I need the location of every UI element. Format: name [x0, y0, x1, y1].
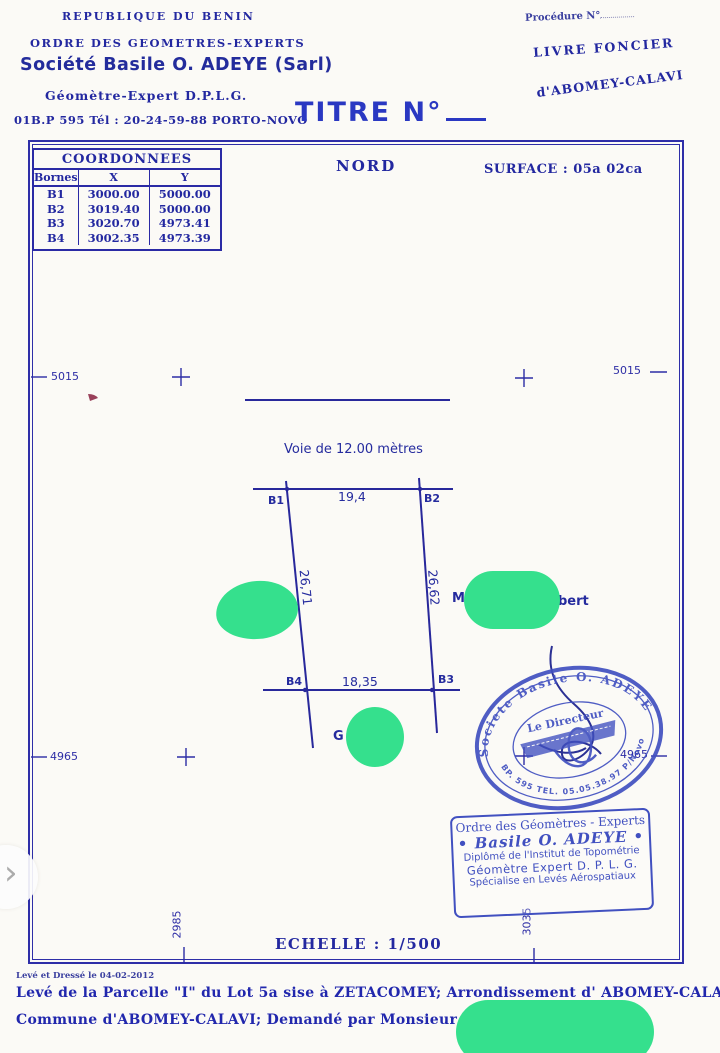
- cell-y: 4973.41: [149, 216, 220, 231]
- length-bottom-side: 18,35: [342, 674, 378, 689]
- road-width-label: Voie de 12.00 mètres: [284, 442, 423, 457]
- cell-x: 3020.70: [78, 216, 149, 231]
- order-heading: ORDRE DES GEOMETRES-EXPERTS: [30, 36, 305, 50]
- corner-label-b3: B3: [438, 673, 454, 686]
- republic-heading: REPUBLIQUE DU BENIN: [62, 10, 255, 23]
- surveyor-stamp: Ordre des Géomètres - Experts • Basile O…: [450, 808, 654, 919]
- corner-label-b1: B1: [268, 494, 284, 507]
- cell-x: 3002.35: [78, 231, 149, 246]
- grid-label-2985-bottom: 2985: [171, 911, 184, 939]
- coordinates-table: COORDONNEES Bornes X Y B1 3000.00 5000.0…: [32, 148, 222, 251]
- grid-label-4965-left: 4965: [50, 750, 78, 763]
- survey-date-note: Levé et Dressé le 04-02-2012: [16, 971, 154, 981]
- neighbor-name-prefix: M: [452, 591, 465, 606]
- scanned-land-title-document: REPUBLIQUE DU BENIN ORDRE DES GEOMETRES-…: [0, 0, 720, 1053]
- col-bornes: Bornes: [34, 170, 78, 186]
- cell-x: 3000.00: [78, 186, 149, 202]
- scale-label: ECHELLE : 1/500: [275, 935, 442, 953]
- table-row: B1 3000.00 5000.00: [34, 186, 220, 202]
- grid-label-5015-right: 5015: [613, 364, 641, 377]
- cell-borne: B4: [34, 231, 78, 246]
- document-title: TITRE N°: [295, 96, 486, 128]
- land-registry-label: LIVRE FONCIER: [533, 35, 675, 60]
- table-row: B3 3020.70 4973.41: [34, 216, 220, 231]
- neighbor-name-suffix: bert: [558, 594, 589, 609]
- company-name: Société Basile O. ADEYE (Sarl): [20, 55, 333, 75]
- cell-y: 4973.39: [149, 231, 220, 246]
- title-text: TITRE N°: [295, 97, 443, 128]
- table-header-row: Bornes X Y: [34, 170, 220, 186]
- north-label: NORD: [336, 157, 396, 175]
- grid-label-4965-right: 4965: [620, 748, 648, 761]
- corner-label-b2: B2: [424, 492, 440, 505]
- surveyor-title: Géomètre-Expert D.P.L.G.: [45, 88, 247, 103]
- cell-borne: B3: [34, 216, 78, 231]
- redaction-blob-footer: [456, 1000, 654, 1053]
- chevron-right-icon: ›: [4, 853, 18, 893]
- col-y: Y: [149, 170, 220, 186]
- corner-label-b4: B4: [286, 675, 302, 688]
- title-blank-line: [446, 96, 486, 121]
- procedure-blank-line: [600, 6, 634, 18]
- cell-borne: B1: [34, 186, 78, 202]
- length-top-side: 19,4: [338, 489, 366, 504]
- cell-x: 3019.40: [78, 202, 149, 217]
- table-row: B2 3019.40 5000.00: [34, 202, 220, 217]
- registry-location: d'ABOMEY-CALAVI: [536, 67, 685, 100]
- procedure-label: Procédure N°: [525, 10, 601, 24]
- procedure-number: Procédure N°: [525, 6, 635, 24]
- grid-label-5015-left: 5015: [51, 370, 79, 383]
- coordinates-table-title: COORDONNEES: [34, 150, 220, 170]
- neighbor-initial-g: G: [333, 729, 344, 744]
- col-x: X: [78, 170, 149, 186]
- cell-y: 5000.00: [149, 202, 220, 217]
- length-right-side: 26,62: [425, 569, 442, 606]
- cell-borne: B2: [34, 202, 78, 217]
- footer-description-line1: Levé de la Parcelle "I" du Lot 5a sise à…: [16, 985, 720, 1001]
- redaction-blob-g: [346, 707, 404, 767]
- redaction-blob-neighbor-name: [464, 571, 560, 629]
- address-phone: 01B.P 595 Tél : 20-24-59-88 PORTO-NOVO: [14, 113, 308, 127]
- surface-label: SURFACE : 05a 02ca: [484, 162, 643, 177]
- cell-y: 5000.00: [149, 186, 220, 202]
- table-row: B4 3002.35 4973.39: [34, 231, 220, 246]
